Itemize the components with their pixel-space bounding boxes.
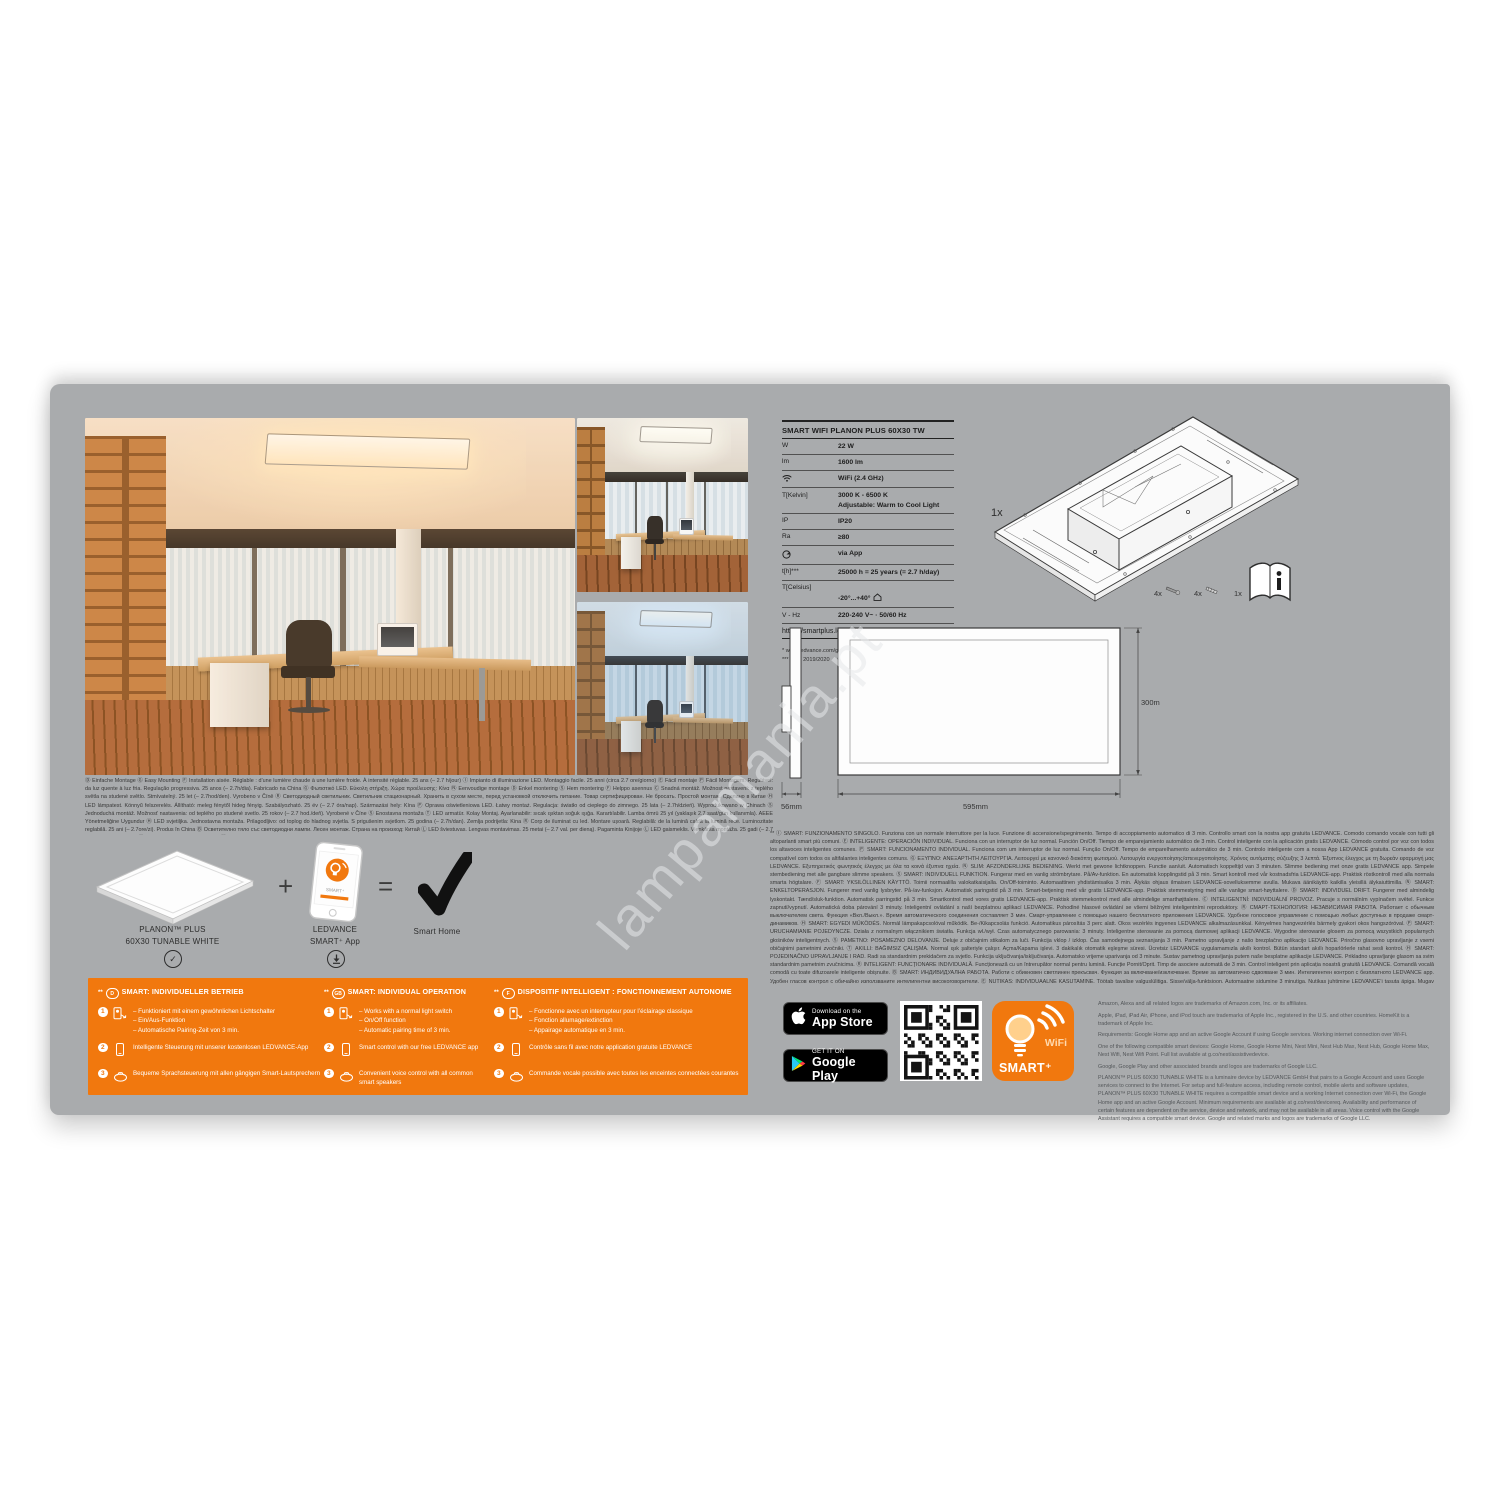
step-text: Commande vocale possible avec toutes les…: [529, 1069, 740, 1078]
quantity-panel: 1x: [991, 507, 1003, 519]
quantity-manual: 1x: [1234, 589, 1242, 598]
quantity-screws: 4x: [1154, 589, 1162, 598]
language-badge: D: [106, 988, 119, 999]
smart-speaker-icon: [113, 1069, 129, 1087]
step-number: 2: [98, 1043, 108, 1053]
smart-column-english: ** GB SMART: INDIVIDUAL OPERATION 1 – Wo…: [324, 988, 486, 1095]
spec-label: IP: [782, 517, 838, 525]
check-glyph: ✓: [169, 954, 177, 965]
light-switch-icon: [113, 1007, 129, 1025]
legal-paragraph: Requirements: Google Home app and an act…: [1098, 1031, 1430, 1039]
multilingual-smart-operation-text: ** Ⓘ SMART: FUNZIONAMENTO SINGOLO. Funzi…: [770, 830, 1434, 986]
house-icon: [873, 593, 882, 604]
equals-sign: =: [378, 871, 393, 902]
badge-subtitle: GET IT ON: [812, 1048, 880, 1055]
dim-width: 595mm: [963, 802, 988, 811]
color-tone-overlay: [577, 602, 748, 775]
download-circle-icon: [327, 950, 345, 968]
step-number: 3: [98, 1069, 108, 1079]
spec-value: 25000 h = 25 years (= 2.7 h/day): [838, 568, 954, 577]
spec-row-ra: Ra ≥80: [782, 530, 954, 546]
wifi-icon: [782, 474, 838, 485]
step-text: Contrôle sans fil avec notre application…: [529, 1043, 740, 1052]
office-photo-neutral-light: [577, 418, 748, 592]
panel-product-label: PLANON™ PLUS 60X30 TUNABLE WHITE: [85, 924, 260, 948]
smart-column-german: ** D SMART: INDIVIDUELLER BETRIEB 1 – Fu…: [98, 988, 322, 1095]
spec-row-ip: IP IP20: [782, 514, 954, 530]
dim-depth: 56mm: [781, 802, 802, 811]
legal-paragraph: One of the following compatible smart de…: [1098, 1043, 1430, 1059]
language-badge: F: [502, 988, 515, 999]
multilingual-mounting-text: Ⓓ Einfache Montage Ⓖ Easy Mounting Ⓕ Ins…: [85, 777, 773, 835]
google-play-icon: [791, 1055, 806, 1077]
badge-title: Google Play: [812, 1055, 880, 1084]
panel-product-image: [85, 845, 260, 927]
step-number: 1: [98, 1007, 108, 1017]
spec-value: WiFi (2.4 GHz): [838, 474, 954, 483]
badge-title: App Store: [812, 1015, 873, 1029]
office-photo-warm-light: [85, 418, 575, 775]
packaging-card: SMART WIFI PLANON PLUS 60X30 TW W 22 W l…: [50, 384, 1450, 1115]
dimmer-dial-icon: [782, 549, 838, 561]
apple-icon: [791, 1007, 806, 1030]
spec-value: 1600 lm: [838, 458, 954, 467]
checkmark-image: [418, 852, 472, 920]
spec-value-text: -20°...+40°: [838, 595, 870, 602]
smart-speaker-icon: [339, 1069, 355, 1087]
app-store-badge: Download on the App Store: [783, 1002, 888, 1035]
screw-icon: [1166, 586, 1181, 595]
step-number: 3: [494, 1069, 504, 1079]
legal-paragraph: Amazon, Alexa and all related logos are …: [1098, 1000, 1430, 1008]
step-text: Convenient voice control with all common…: [359, 1069, 486, 1088]
smart-operation-section: ** D SMART: INDIVIDUELLER BETRIEB 1 – Fu…: [88, 978, 748, 1095]
spec-row-kelvin: T[Kelvin] 3000 K - 6500 K Adjustable: Wa…: [782, 488, 954, 513]
manual-booklet-icon: [1250, 563, 1290, 600]
smart-home-label: Smart Home: [387, 926, 487, 938]
plus-sign: +: [278, 871, 293, 902]
spec-label: lm: [782, 458, 838, 466]
step-text: – Funktioniert mit einem gewöhnlichen Li…: [133, 1007, 322, 1035]
step-text: – Works with a normal light switch – On/…: [359, 1007, 486, 1035]
footnote-stars: **: [98, 990, 103, 996]
spec-value: IP20: [838, 517, 954, 526]
spec-value: -20°...+40°: [838, 584, 954, 604]
smartphone-app-image: SMART⁺: [308, 841, 364, 924]
spec-label: t[h]***: [782, 568, 838, 576]
column-title: SMART: INDIVIDUAL OPERATION: [348, 988, 466, 997]
smart-plus-label: SMART⁺: [999, 1060, 1052, 1075]
accessories-row: 4x 4x 1x: [1150, 560, 1320, 610]
check-circle-icon: ✓: [164, 950, 182, 968]
step-text: Intelligente Steuerung mit unserer koste…: [133, 1043, 322, 1052]
google-play-badge: GET IT ON Google Play: [783, 1049, 888, 1082]
smart-plus-wifi-logo: WiFi SMART⁺: [992, 1001, 1074, 1081]
app-product-label: LEDVANCE SMART⁺ App: [275, 924, 395, 948]
step-number: 2: [494, 1043, 504, 1053]
dim-height: 300mm: [1141, 698, 1160, 707]
legal-paragraph: Google, Google Play and other associated…: [1098, 1063, 1430, 1071]
spec-value: ≥80: [838, 533, 954, 542]
spec-row-lumen: lm 1600 lm: [782, 455, 954, 471]
smart-column-french: ** F DISPOSITIF INTELLIGENT : FONCTIONNE…: [494, 988, 740, 1095]
smart-speaker-icon: [509, 1069, 525, 1087]
step-number: 2: [324, 1043, 334, 1053]
smartphone-icon: [339, 1043, 355, 1061]
step-text: Smart control with our free LEDVANCE app: [359, 1043, 486, 1052]
footnote-stars: **: [324, 990, 329, 996]
spec-value: via App: [838, 549, 954, 558]
spec-label: Ra: [782, 533, 838, 541]
spec-label: W: [782, 442, 838, 450]
badge-subtitle: Download on the: [812, 1008, 873, 1015]
spec-label: T[Celsius]: [782, 584, 838, 592]
light-switch-icon: [509, 1007, 525, 1025]
step-number: 1: [494, 1007, 504, 1017]
step-text: – Fonctionne avec un interrupteur pour l…: [529, 1007, 740, 1035]
light-switch-icon: [339, 1007, 355, 1025]
column-title: DISPOSITIF INTELLIGENT : FONCTIONNEMENT …: [518, 988, 732, 997]
wifi-label: WiFi: [1045, 1037, 1067, 1049]
product-title: SMART WIFI PLANON PLUS 60X30 TW: [782, 422, 954, 439]
qr-code: [900, 1001, 982, 1081]
dimension-drawing: 56mm 595mm 300mm: [780, 616, 1160, 816]
spec-row-temperature: T[Celsius] -20°...+40°: [782, 581, 954, 608]
footnote-stars: **: [494, 990, 499, 996]
spec-row-lifetime: t[h]*** 25000 h = 25 years (= 2.7 h/day): [782, 565, 954, 581]
language-badge: GB: [332, 988, 345, 999]
quantity-anchors: 4x: [1194, 589, 1202, 598]
smartphone-icon: [113, 1043, 129, 1061]
step-number: 3: [324, 1069, 334, 1079]
color-tone-overlay: [577, 418, 748, 592]
legal-paragraph: PLANON™ PLUS 60X30 TUNABLE WHITE is a lu…: [1098, 1074, 1430, 1123]
color-tone-overlay: [85, 418, 575, 775]
step-text: Bequeme Sprachsteuerung mit allen gängig…: [133, 1069, 322, 1078]
spec-row-watt: W 22 W: [782, 439, 954, 455]
office-photo-cool-light: [577, 602, 748, 775]
spec-value: 22 W: [838, 442, 954, 451]
spec-row-dim: via App: [782, 546, 954, 565]
spec-value: 3000 K - 6500 K Adjustable: Warm to Cool…: [838, 491, 954, 509]
smartphone-icon: [509, 1043, 525, 1061]
spec-label: T[Kelvin]: [782, 491, 838, 499]
step-number: 1: [324, 1007, 334, 1017]
spec-row-wifi: WiFi (2.4 GHz): [782, 471, 954, 489]
anchor-icon: [1206, 587, 1217, 594]
legal-paragraph: Apple, iPad, iPad Air, iPhone, and iPod …: [1098, 1012, 1430, 1028]
legal-text-block: Amazon, Alexa and all related logos are …: [1098, 1000, 1430, 1126]
column-title: SMART: INDIVIDUELLER BETRIEB: [122, 988, 244, 997]
